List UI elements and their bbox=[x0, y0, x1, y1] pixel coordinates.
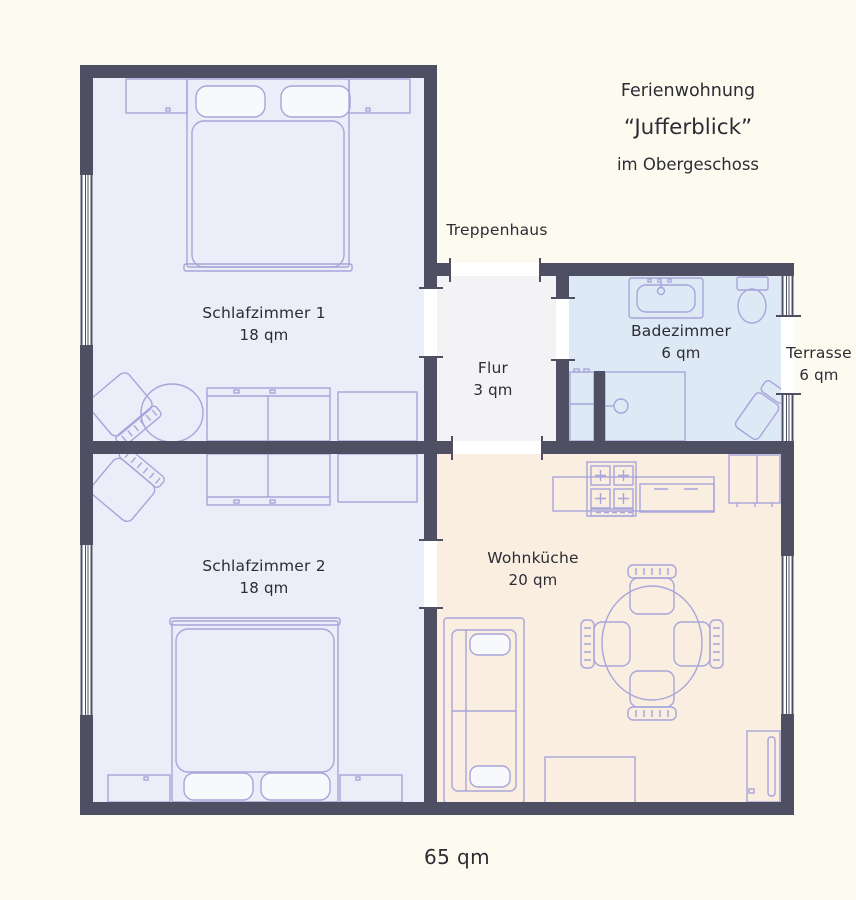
title-line1: Ferienwohnung bbox=[617, 81, 759, 101]
door-flur-treppenhaus bbox=[450, 263, 540, 276]
room-area: 6 qm bbox=[786, 364, 852, 386]
window-badezimmer-bottom-icon bbox=[781, 394, 794, 441]
room-label-treppenhaus: Treppenhaus bbox=[446, 219, 547, 241]
room-area: 3 qm bbox=[473, 379, 512, 401]
room-area: 6 qm bbox=[631, 342, 731, 364]
schlafzimmer1-floor bbox=[93, 78, 424, 441]
window-schlafzimmer2-icon bbox=[80, 545, 93, 715]
door-schlafzimmer2-wohnkueche bbox=[424, 540, 437, 608]
total-area-label: 65 qm bbox=[424, 845, 490, 869]
title-line3: im Obergeschoss bbox=[617, 155, 759, 174]
room-name: Schlafzimmer 2 bbox=[202, 555, 326, 577]
door-flur-badezimmer bbox=[556, 298, 569, 360]
room-name: Terrasse bbox=[786, 342, 852, 364]
floor-plan-page: Ferienwohnung “Jufferblick” im Obergesch… bbox=[0, 0, 856, 900]
room-label-badezimmer: Badezimmer 6 qm bbox=[631, 320, 731, 364]
window-badezimmer-top-icon bbox=[781, 276, 794, 316]
room-name: Wohnküche bbox=[487, 547, 579, 569]
room-name: Schlafzimmer 1 bbox=[202, 302, 326, 324]
door-schlafzimmer1-flur bbox=[424, 288, 437, 357]
door-flur-wohnkueche bbox=[452, 441, 542, 454]
room-label-wohnkueche: Wohnküche 20 qm bbox=[487, 547, 579, 591]
room-area: 18 qm bbox=[202, 324, 326, 346]
room-area: 18 qm bbox=[202, 577, 326, 599]
window-wohnkueche-icon bbox=[781, 556, 794, 714]
plan-title: Ferienwohnung “Jufferblick” im Obergesch… bbox=[617, 81, 759, 174]
room-label-schlafzimmer2: Schlafzimmer 2 18 qm bbox=[202, 555, 326, 599]
wohnkueche-floor bbox=[437, 454, 781, 802]
room-label-schlafzimmer1: Schlafzimmer 1 18 qm bbox=[202, 302, 326, 346]
room-name: Treppenhaus bbox=[446, 221, 547, 239]
title-line2: “Jufferblick” bbox=[617, 115, 759, 140]
room-label-terrasse: Terrasse 6 qm bbox=[786, 342, 852, 386]
room-area: 20 qm bbox=[487, 569, 579, 591]
room-name: Flur bbox=[473, 357, 512, 379]
room-name: Badezimmer bbox=[631, 320, 731, 342]
window-schlafzimmer1-icon bbox=[80, 175, 93, 345]
room-label-flur: Flur 3 qm bbox=[473, 357, 512, 401]
